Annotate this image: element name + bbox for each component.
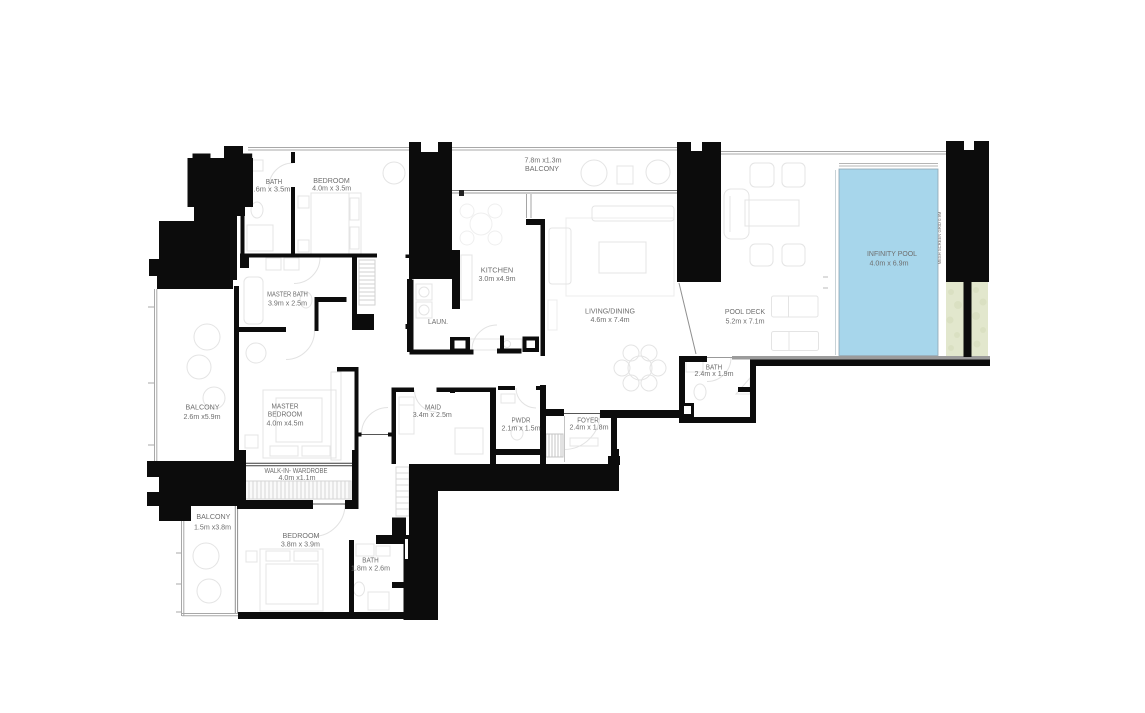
svg-text:4.0m x 6.9m: 4.0m x 6.9m xyxy=(869,259,908,267)
svg-text:1.5m x3.8m: 1.5m x3.8m xyxy=(194,524,231,532)
svg-text:2.6m x5.9m: 2.6m x5.9m xyxy=(183,413,220,421)
svg-text:BALCONY: BALCONY xyxy=(186,403,220,411)
svg-text:7.8m x1.3m: 7.8m x1.3m xyxy=(524,156,561,164)
svg-text:3.9m x 2.5m: 3.9m x 2.5m xyxy=(268,300,307,308)
svg-text:4.0m x4.5m: 4.0m x4.5m xyxy=(266,419,303,427)
svg-text:BATH: BATH xyxy=(362,557,379,565)
svg-text:MASTER BATH: MASTER BATH xyxy=(267,291,308,299)
svg-text:BEDROOM: BEDROOM xyxy=(268,411,303,419)
svg-text:PWDR: PWDR xyxy=(512,417,531,425)
svg-text:INFINITY POOL: INFINITY POOL xyxy=(867,250,917,258)
svg-text:BEDROOM: BEDROOM xyxy=(283,532,320,540)
svg-text:KITCHEN: KITCHEN xyxy=(481,267,513,275)
svg-text:1.8m x 2.6m: 1.8m x 2.6m xyxy=(351,565,390,573)
svg-text:2.4m x 1.9m: 2.4m x 1.9m xyxy=(694,370,733,378)
svg-text:BALCONY: BALCONY xyxy=(525,165,559,173)
svg-text:BALCONY: BALCONY xyxy=(196,513,230,521)
svg-text:3.0m x4.9m: 3.0m x4.9m xyxy=(478,275,515,283)
svg-text:5.2m x 7.1m: 5.2m x 7.1m xyxy=(725,318,764,326)
svg-text:3.4m x 2.5m: 3.4m x 2.5m xyxy=(413,411,452,419)
svg-text:2.4m x 1.8m: 2.4m x 1.8m xyxy=(569,424,608,432)
svg-text:LIVING/DINING: LIVING/DINING xyxy=(585,308,635,316)
svg-text:.6m x 3.5m: .6m x 3.5m xyxy=(254,186,291,194)
svg-text:POOL DECK: POOL DECK xyxy=(725,308,766,316)
svg-text:4.0m x 3.5m: 4.0m x 3.5m xyxy=(312,185,351,193)
svg-text:LAUN.: LAUN. xyxy=(428,318,448,326)
svg-text:2.1m x 1.5m: 2.1m x 1.5m xyxy=(501,425,540,433)
svg-text:MESH SCREEN GRID 0.9M: MESH SCREEN GRID 0.9M xyxy=(937,211,942,264)
svg-text:4.0m x1.1m: 4.0m x1.1m xyxy=(278,474,315,482)
svg-text:3.8m x 3.9m: 3.8m x 3.9m xyxy=(281,541,320,549)
svg-text:MASTER: MASTER xyxy=(272,402,299,410)
svg-text:4.6m x 7.4m: 4.6m x 7.4m xyxy=(590,316,629,324)
